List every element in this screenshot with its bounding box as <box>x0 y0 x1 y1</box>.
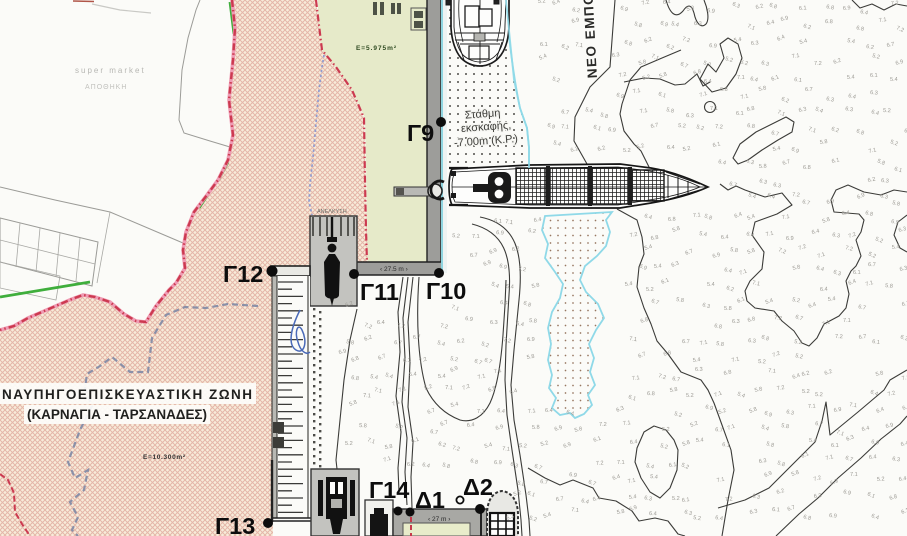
svg-text:5.2: 5.2 <box>883 108 891 114</box>
svg-text:6.1: 6.1 <box>794 77 803 84</box>
svg-text:5.8: 5.8 <box>885 283 893 290</box>
svg-text:6.8: 6.8 <box>746 106 755 113</box>
svg-text:5.2: 5.2 <box>672 496 680 502</box>
svg-text:7.1: 7.1 <box>632 375 640 382</box>
svg-text:7.2: 7.2 <box>618 72 627 79</box>
svg-text:(ΚΑΡΝΑΓΙΑ - ΤΑΡΣΑΝΑΔΕΣ): (ΚΑΡΝΑΓΙΑ - ΤΑΡΣΑΝΑΔΕΣ) <box>27 407 207 422</box>
svg-text:7.1: 7.1 <box>561 124 569 131</box>
svg-text:Γ10: Γ10 <box>426 278 466 304</box>
svg-text:6.2: 6.2 <box>457 338 465 345</box>
svg-text:5.2: 5.2 <box>646 287 654 293</box>
svg-text:6.7: 6.7 <box>556 496 564 503</box>
svg-text:5.4: 5.4 <box>696 437 704 444</box>
svg-text:6.3: 6.3 <box>870 90 878 97</box>
svg-text:5.2: 5.2 <box>686 393 694 399</box>
svg-text:5.4: 5.4 <box>828 296 836 303</box>
svg-text:7.1: 7.1 <box>505 219 514 226</box>
svg-text:7.1: 7.1 <box>782 214 790 221</box>
svg-text:5.4: 5.4 <box>506 284 514 290</box>
svg-text:Στάθμη: Στάθμη <box>465 107 501 121</box>
svg-text:6.4: 6.4 <box>902 404 907 412</box>
svg-text:6.1: 6.1 <box>772 507 780 513</box>
svg-text:ΑΝΕΛΚΥΣΗ: ΑΝΕΛΚΥΣΗ <box>317 209 347 215</box>
svg-text:6.8: 6.8 <box>668 217 676 223</box>
svg-text:5.8: 5.8 <box>819 139 828 146</box>
svg-text:7.1: 7.1 <box>693 212 701 219</box>
svg-text:6.7: 6.7 <box>868 262 876 268</box>
svg-text:5.4: 5.4 <box>892 244 900 251</box>
svg-text:‹ 27.5 m ›: ‹ 27.5 m › <box>380 266 408 273</box>
svg-text:6.1: 6.1 <box>853 270 861 276</box>
svg-text:6.4: 6.4 <box>545 408 553 414</box>
svg-text:6.8: 6.8 <box>825 19 833 25</box>
svg-text:5.4: 5.4 <box>692 357 701 364</box>
svg-text:6.3: 6.3 <box>813 493 822 500</box>
svg-text:5.2: 5.2 <box>678 123 686 130</box>
svg-text:6.1: 6.1 <box>668 462 677 469</box>
svg-text:6.9: 6.9 <box>843 5 851 12</box>
svg-text:7.1: 7.1 <box>768 368 776 375</box>
svg-text:6.7: 6.7 <box>715 427 723 434</box>
svg-text:Γ11: Γ11 <box>360 279 399 305</box>
svg-text:6.7: 6.7 <box>430 429 439 436</box>
svg-text:7.2: 7.2 <box>599 422 607 428</box>
svg-text:Γ9: Γ9 <box>407 120 434 146</box>
svg-text:7.2: 7.2 <box>774 315 783 322</box>
svg-text:super market: super market <box>75 66 146 75</box>
svg-text:6.4: 6.4 <box>377 320 385 326</box>
svg-text:5.8: 5.8 <box>759 164 767 170</box>
svg-text:6.1: 6.1 <box>403 358 411 364</box>
svg-text:7.1: 7.1 <box>639 108 648 115</box>
svg-text:6.7: 6.7 <box>540 479 548 486</box>
svg-text:6.2: 6.2 <box>528 228 537 235</box>
svg-text:6.9: 6.9 <box>465 316 473 323</box>
svg-text:6.9: 6.9 <box>496 230 504 237</box>
svg-text:6.4: 6.4 <box>649 511 657 517</box>
svg-text:6.9: 6.9 <box>608 127 616 134</box>
svg-text:6.1: 6.1 <box>736 111 744 117</box>
svg-text:6.3: 6.3 <box>748 338 756 345</box>
svg-text:7.1: 7.1 <box>617 460 625 466</box>
svg-text:6.9: 6.9 <box>709 43 717 50</box>
svg-text:7.1: 7.1 <box>850 472 858 478</box>
svg-text:7.1: 7.1 <box>710 106 718 112</box>
svg-text:6.9: 6.9 <box>494 460 502 466</box>
svg-text:6.3: 6.3 <box>758 458 767 465</box>
svg-text:E=5.975m²: E=5.975m² <box>356 45 397 52</box>
svg-text:5.8: 5.8 <box>529 318 537 325</box>
svg-text:5.8: 5.8 <box>384 444 393 451</box>
svg-text:5.8: 5.8 <box>676 297 685 304</box>
svg-text:7.2: 7.2 <box>725 496 733 503</box>
svg-text:7.1: 7.1 <box>699 340 708 347</box>
svg-text:6.8: 6.8 <box>647 391 655 397</box>
svg-text:5.4: 5.4 <box>624 281 633 288</box>
svg-text:6.1: 6.1 <box>494 218 502 225</box>
svg-text:7.1: 7.1 <box>737 75 745 81</box>
svg-text:6.9: 6.9 <box>891 219 900 226</box>
svg-text:6.1: 6.1 <box>870 73 878 79</box>
svg-text:6.8: 6.8 <box>351 375 360 382</box>
svg-text:6.9: 6.9 <box>786 236 794 242</box>
svg-text:6.4: 6.4 <box>663 0 671 6</box>
svg-text:5.2: 5.2 <box>452 233 460 240</box>
svg-text:6.3: 6.3 <box>732 319 740 325</box>
svg-text:7.2: 7.2 <box>629 232 638 239</box>
svg-text:Γ13: Γ13 <box>215 513 255 536</box>
svg-text:6.3: 6.3 <box>695 367 703 373</box>
svg-text:5.4: 5.4 <box>707 282 715 288</box>
svg-text:6.1: 6.1 <box>831 443 839 449</box>
svg-text:ΝΑΥΠΗΓΟΕΠΙΣΚΕΥΑΣΤΙΚΗ ΖΩΝΗ: ΝΑΥΠΗΓΟΕΠΙΣΚΕΥΑΣΤΙΚΗ ΖΩΝΗ <box>2 387 252 402</box>
svg-text:5.8: 5.8 <box>716 341 725 348</box>
svg-text:6.7: 6.7 <box>413 334 421 341</box>
svg-text:7.2: 7.2 <box>596 460 604 467</box>
svg-text:5.2: 5.2 <box>802 389 810 395</box>
svg-text:7.1: 7.1 <box>879 17 887 24</box>
svg-text:7.1: 7.1 <box>575 42 584 49</box>
svg-text:7.1: 7.1 <box>623 420 631 427</box>
svg-text:6.3: 6.3 <box>881 178 889 185</box>
svg-text:5.4: 5.4 <box>629 494 637 501</box>
svg-text:6.9: 6.9 <box>527 337 535 343</box>
svg-text:E=10.300m²: E=10.300m² <box>143 454 186 461</box>
svg-text:6.4: 6.4 <box>630 439 638 446</box>
svg-text:5.8: 5.8 <box>359 423 367 429</box>
svg-text:5.4: 5.4 <box>438 374 446 380</box>
svg-text:5.2: 5.2 <box>345 441 353 447</box>
svg-text:Γ12: Γ12 <box>223 261 263 287</box>
svg-text:6.4: 6.4 <box>898 476 907 483</box>
svg-text:6.4: 6.4 <box>842 210 850 217</box>
svg-text:6.3: 6.3 <box>612 52 620 59</box>
svg-text:5.4: 5.4 <box>733 37 742 44</box>
svg-text:Γ14: Γ14 <box>369 477 409 503</box>
svg-text:5.2: 5.2 <box>662 427 670 433</box>
svg-text:7.1: 7.1 <box>808 404 816 410</box>
svg-text:7.1: 7.1 <box>477 409 485 415</box>
svg-text:7.2: 7.2 <box>891 0 899 7</box>
svg-text:5.2: 5.2 <box>815 392 823 398</box>
svg-text:6.4: 6.4 <box>869 454 877 461</box>
svg-text:6.3: 6.3 <box>686 113 694 119</box>
svg-text:5.8: 5.8 <box>669 387 678 394</box>
svg-text:6.7: 6.7 <box>805 87 813 93</box>
svg-text:7.2: 7.2 <box>715 124 723 131</box>
svg-text:6.4: 6.4 <box>900 441 907 448</box>
svg-text:7.1: 7.1 <box>472 234 480 240</box>
svg-text:7.2: 7.2 <box>814 61 822 67</box>
svg-text:6.4: 6.4 <box>533 217 542 224</box>
svg-text:7.1: 7.1 <box>494 368 502 375</box>
svg-text:7.1: 7.1 <box>629 336 638 343</box>
svg-text:7.2: 7.2 <box>397 323 405 330</box>
svg-text:6.4: 6.4 <box>497 408 505 415</box>
svg-text:6.9: 6.9 <box>829 513 837 520</box>
svg-text:Δ2: Δ2 <box>463 474 493 500</box>
svg-text:6.1: 6.1 <box>799 5 807 12</box>
svg-text:5.2: 5.2 <box>693 515 702 522</box>
svg-text:6.9: 6.9 <box>569 472 577 479</box>
svg-text:6.1: 6.1 <box>682 497 690 504</box>
svg-text:5.8: 5.8 <box>532 425 540 431</box>
svg-text:6.4: 6.4 <box>467 422 475 429</box>
svg-text:5.4: 5.4 <box>650 474 658 481</box>
svg-text:‹ 27 m ›: ‹ 27 m › <box>428 516 450 523</box>
svg-text:6.4: 6.4 <box>820 287 828 293</box>
svg-text:7.1: 7.1 <box>571 507 580 514</box>
svg-text:6.7: 6.7 <box>815 421 823 428</box>
svg-text:7.1: 7.1 <box>627 478 636 485</box>
svg-text:7.1: 7.1 <box>528 408 536 415</box>
svg-text:5.2: 5.2 <box>623 148 631 154</box>
svg-text:5.4: 5.4 <box>409 372 417 378</box>
svg-text:5.8: 5.8 <box>730 247 739 254</box>
svg-text:6.4: 6.4 <box>704 79 712 85</box>
svg-text:7.1: 7.1 <box>445 385 453 391</box>
svg-text:6.2: 6.2 <box>407 462 415 468</box>
svg-text:5.2: 5.2 <box>519 443 527 450</box>
svg-text:ΑΠΟΘΗΚΗ: ΑΠΟΘΗΚΗ <box>85 84 127 91</box>
svg-text:5.4: 5.4 <box>654 263 662 270</box>
svg-text:6.3: 6.3 <box>490 320 498 326</box>
svg-text:6.3: 6.3 <box>751 40 759 47</box>
svg-text:Δ1: Δ1 <box>415 487 445 513</box>
svg-text:5.2: 5.2 <box>538 0 546 5</box>
svg-text:6.8: 6.8 <box>720 87 728 93</box>
svg-text:7.1: 7.1 <box>632 88 641 95</box>
svg-text:6.7: 6.7 <box>682 339 690 345</box>
svg-text:6.8: 6.8 <box>803 165 811 171</box>
svg-text:7.2: 7.2 <box>776 385 785 392</box>
svg-text:5.8: 5.8 <box>724 306 732 312</box>
svg-text:7.1: 7.1 <box>791 53 800 60</box>
svg-text:6.2: 6.2 <box>866 44 875 51</box>
svg-text:5.4: 5.4 <box>809 438 817 444</box>
svg-text:6.7: 6.7 <box>394 340 402 347</box>
svg-text:6.2: 6.2 <box>512 246 520 253</box>
svg-text:7.1: 7.1 <box>901 375 907 382</box>
svg-text:6.1: 6.1 <box>722 442 730 449</box>
svg-text:6.1: 6.1 <box>872 339 880 346</box>
svg-text:6.7: 6.7 <box>470 253 478 259</box>
svg-text:6.3: 6.3 <box>694 21 702 27</box>
svg-text:7.1: 7.1 <box>363 393 371 399</box>
svg-text:5.4: 5.4 <box>847 74 855 81</box>
svg-text:6.4: 6.4 <box>667 145 675 151</box>
svg-text:5.2: 5.2 <box>758 359 766 365</box>
svg-text:7.2: 7.2 <box>835 334 843 340</box>
svg-text:6.1: 6.1 <box>540 42 548 48</box>
svg-text:7.1: 7.1 <box>502 446 510 453</box>
svg-text:6.8: 6.8 <box>747 123 755 130</box>
svg-text:5.8: 5.8 <box>616 509 625 516</box>
svg-text:6.4: 6.4 <box>516 321 525 328</box>
svg-text:7.1: 7.1 <box>843 318 851 324</box>
svg-text:6.4: 6.4 <box>500 300 508 307</box>
svg-text:5.2: 5.2 <box>877 476 885 483</box>
svg-text:5.4: 5.4 <box>890 77 898 83</box>
svg-text:6.9: 6.9 <box>707 8 715 15</box>
svg-text:6.4: 6.4 <box>721 234 729 241</box>
svg-text:6.7: 6.7 <box>901 301 907 308</box>
svg-text:7.2: 7.2 <box>792 192 800 199</box>
